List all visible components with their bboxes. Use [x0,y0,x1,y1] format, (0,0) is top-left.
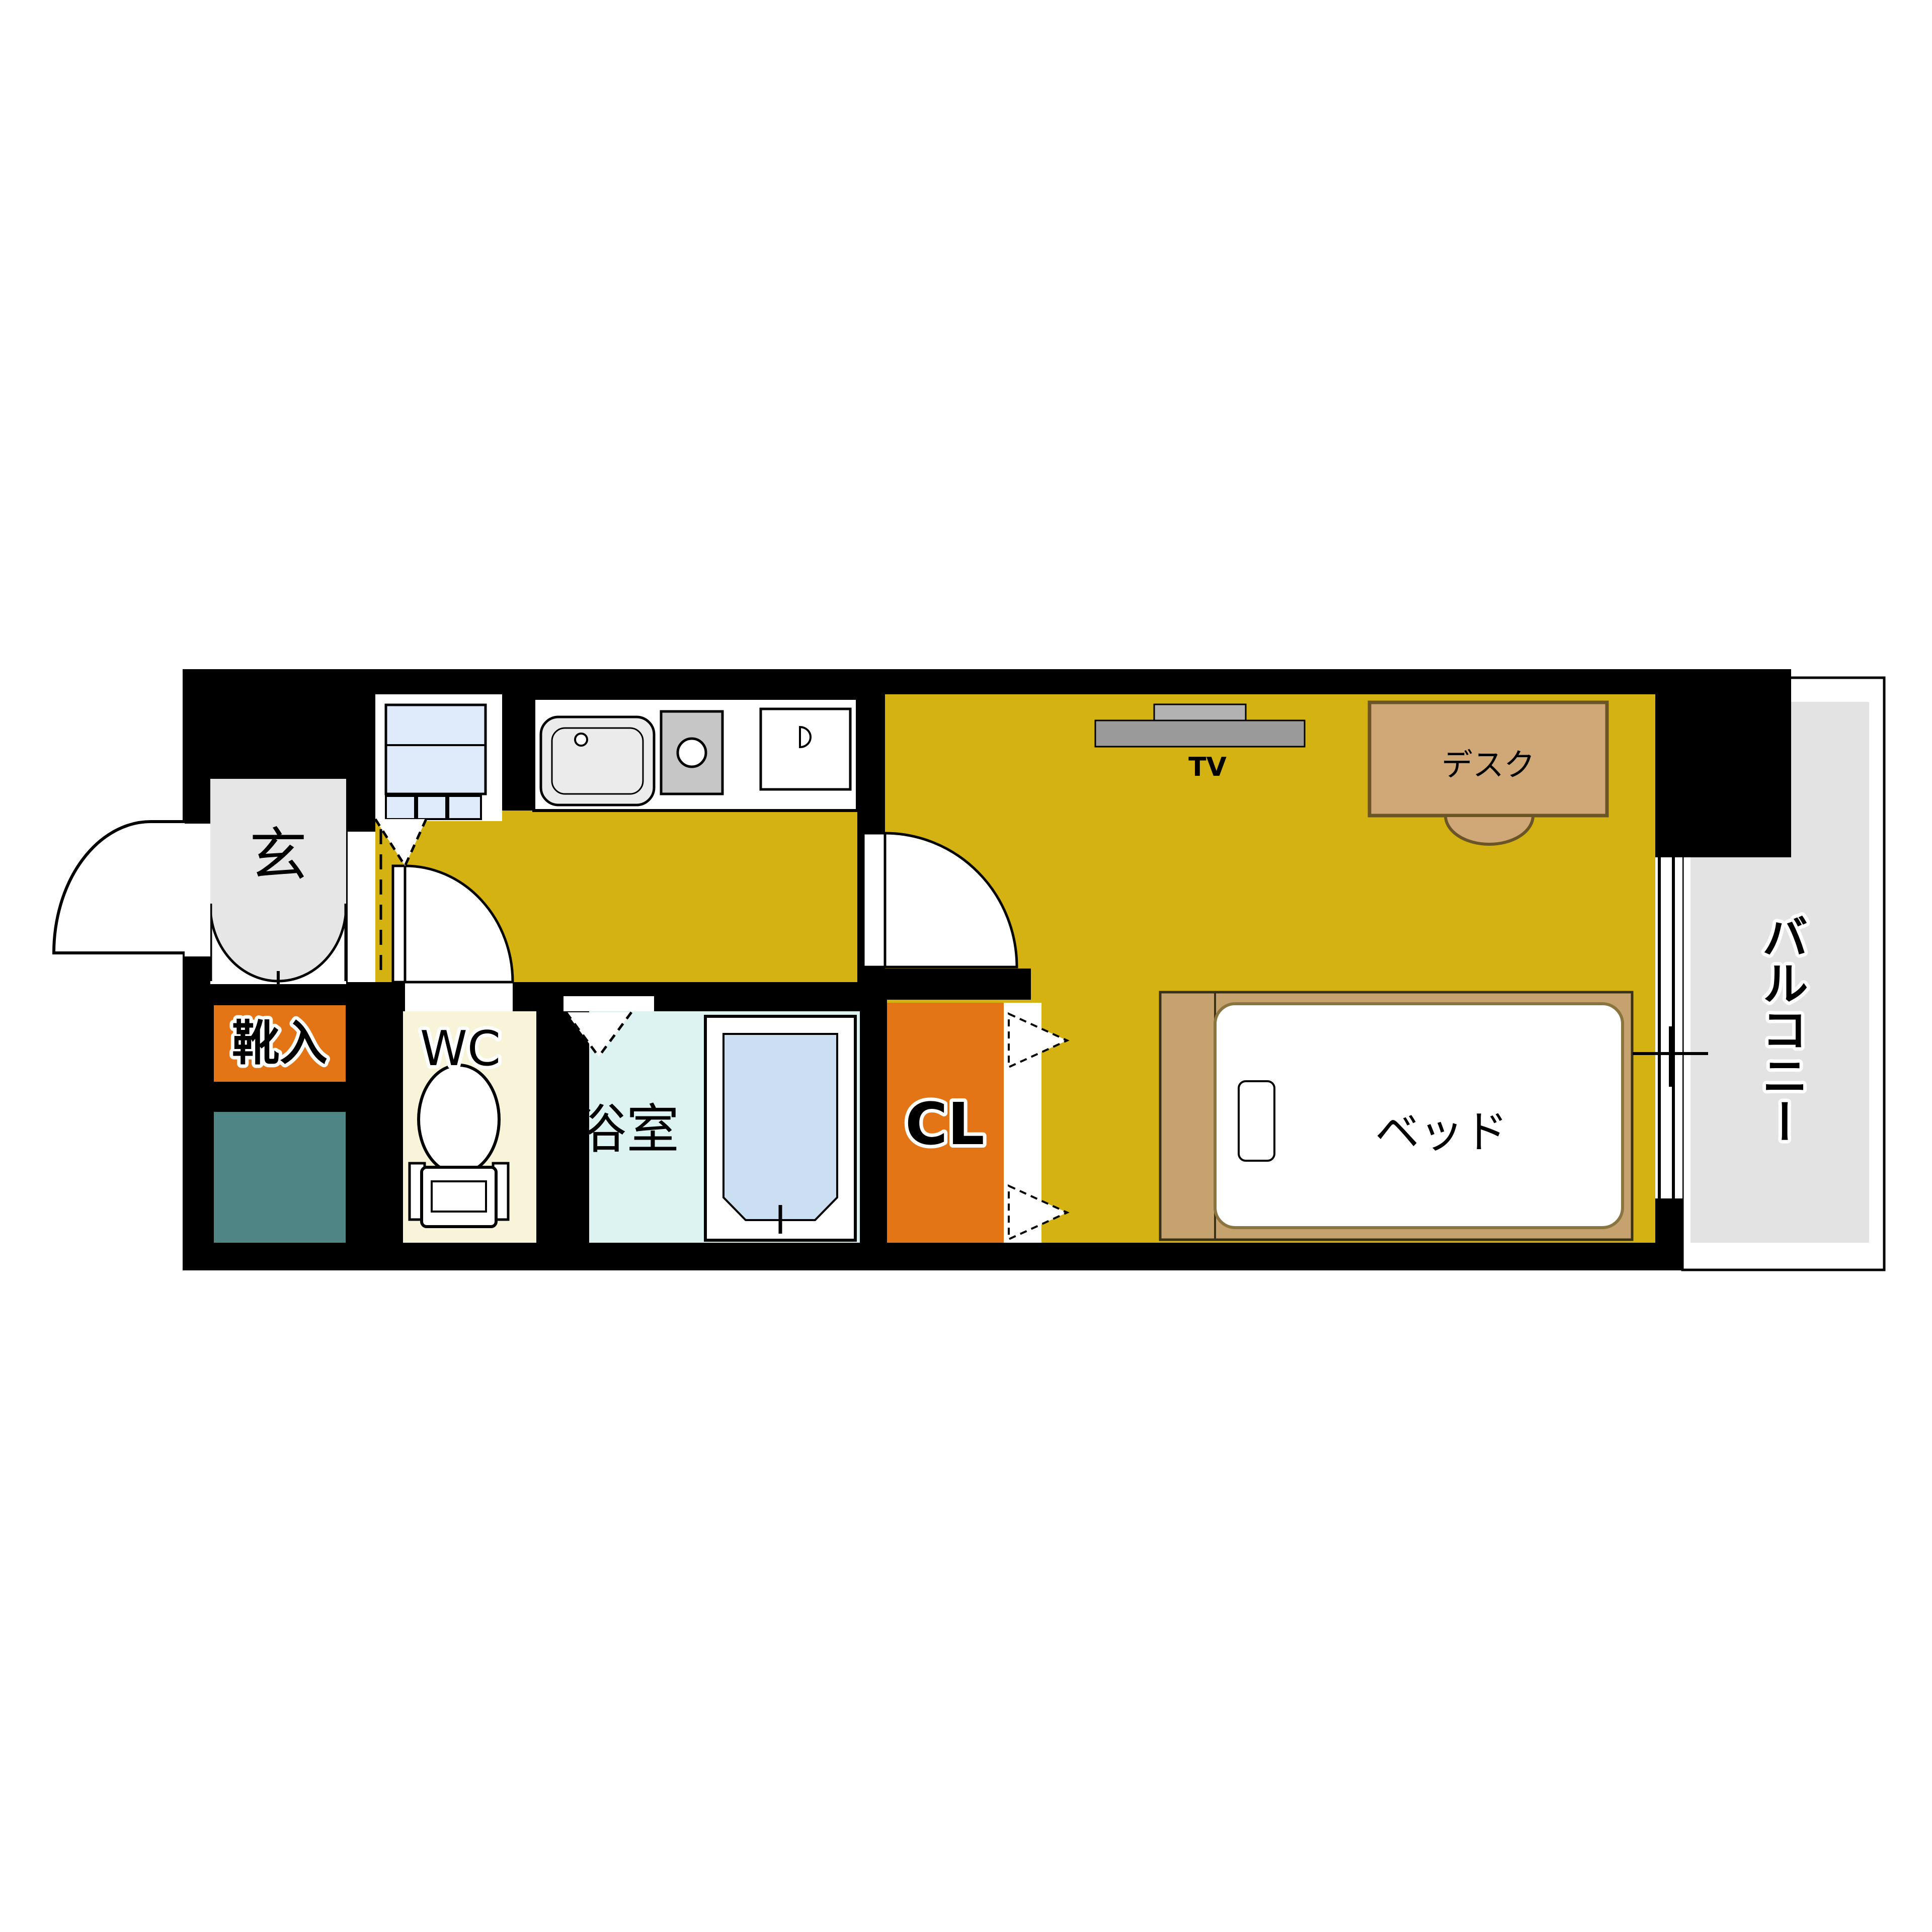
washer-refrigerator-space [386,705,486,794]
living-door-leaf [863,833,885,967]
wall-top-right-block [1683,669,1791,857]
shoe-storage-label: 靴入 [232,1016,328,1071]
entrance-door-swing-arc [54,822,185,953]
bathroom-label: 浴室 [574,1099,679,1160]
closet-label: CL [905,1091,985,1158]
counter-work-top [761,709,850,789]
tv-label: TV [1188,752,1227,782]
kitchen-floor [502,811,857,982]
stove-burner-icon [678,739,706,767]
tv-screen [1095,720,1305,747]
floor-plan-drawing: バルコニー 玄 [0,0,1932,1932]
toilet-seat-icon [432,1181,486,1212]
appliance-tile-2 [417,796,446,819]
balcony-label: バルコニー [1754,913,1808,1145]
floor-plan-page: バルコニー 玄 [0,0,1932,1932]
appliance-tile-1 [386,796,415,819]
wall-closet-left [860,982,887,1243]
entrance-opening [185,824,210,956]
genkan-side-strip [348,832,375,982]
sink-faucet-icon [575,734,587,746]
wc-label: WC [420,1021,501,1077]
toilet-bowl-icon [419,1065,499,1174]
utility-box [214,1112,346,1243]
desk-label: デスク [1441,747,1535,783]
wall-bar-above-closet [885,969,1031,1000]
bed-label: ベッド [1375,1106,1508,1158]
appliance-tile-3 [448,796,481,819]
bed-pillow [1239,1081,1274,1161]
wc-door-leaf [393,866,405,982]
genkan-label: 玄 [249,822,307,889]
bath-doorway-gap [563,996,654,1011]
tv-stand [1154,704,1246,720]
bathtub-water [723,1034,837,1220]
